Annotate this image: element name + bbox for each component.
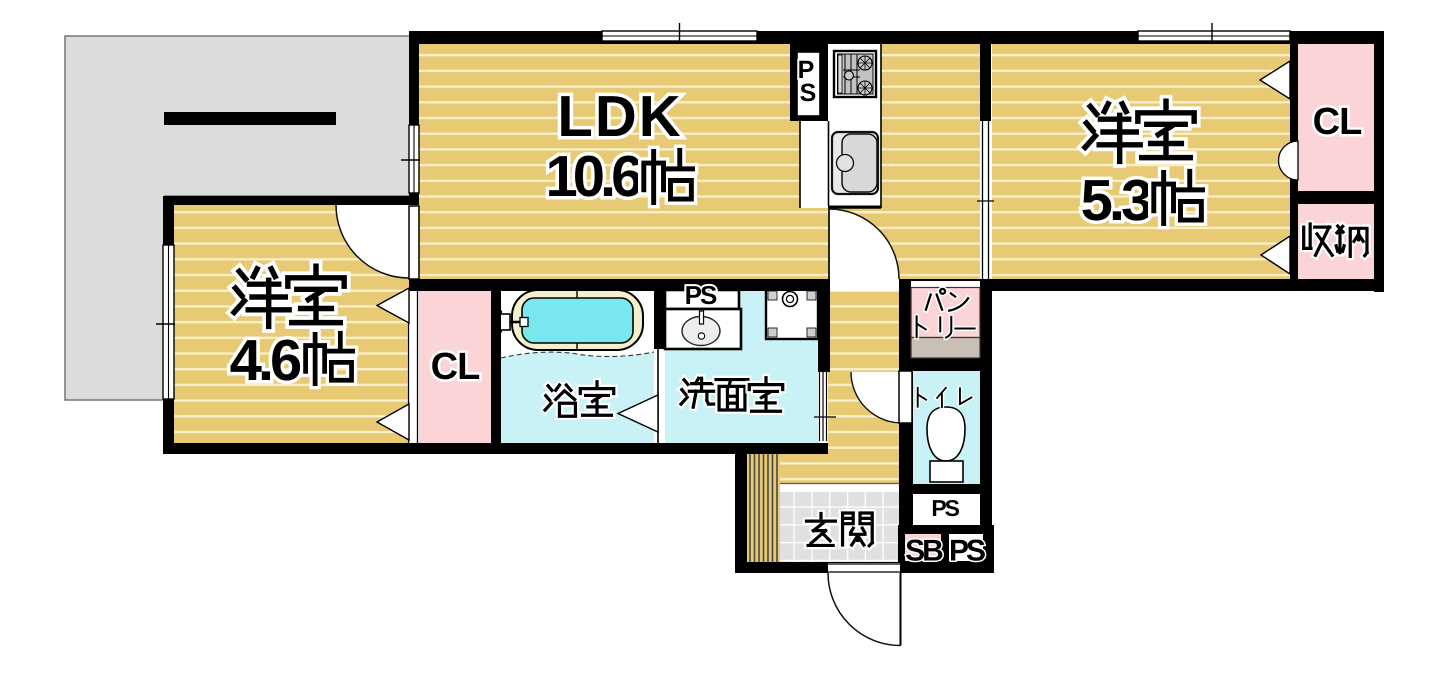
svg-text:CL: CL [1313, 101, 1362, 143]
svg-text:LDK: LDK [557, 84, 682, 149]
svg-text:PS: PS [949, 535, 985, 568]
svg-text:S: S [800, 79, 817, 107]
svg-text:CL: CL [431, 346, 480, 388]
svg-text:5.3: 5.3 [1081, 168, 1152, 233]
svg-text:10.6: 10.6 [546, 144, 643, 209]
svg-text:PS: PS [931, 495, 959, 521]
svg-text:SB: SB [905, 535, 943, 568]
svg-text:PS: PS [685, 280, 717, 310]
svg-text:4.6: 4.6 [230, 328, 301, 393]
